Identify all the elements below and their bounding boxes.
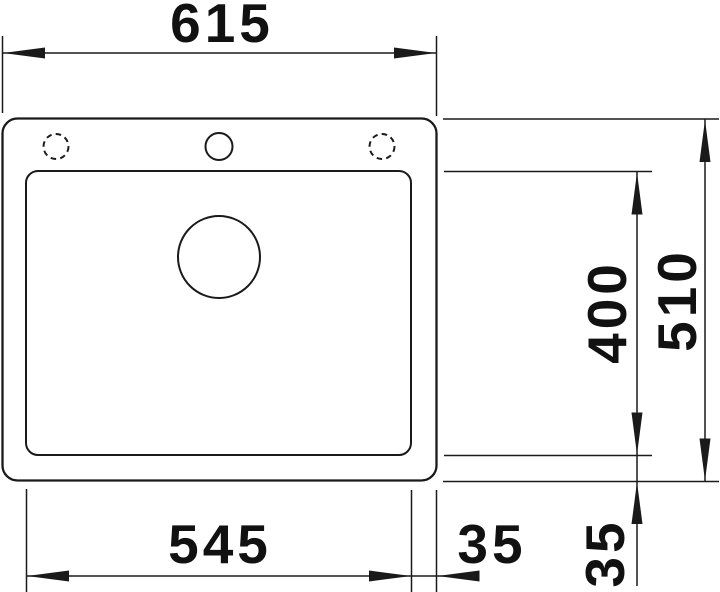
arrow-up-icon bbox=[700, 120, 711, 162]
dim-label-depth-overall: 510 bbox=[646, 248, 708, 352]
sink-bowl-outline bbox=[26, 171, 411, 455]
arrow-left-icon bbox=[3, 48, 45, 59]
dim-label-width-bowl: 545 bbox=[168, 513, 272, 575]
arrow-up-icon bbox=[632, 482, 643, 524]
drain-hole-circle bbox=[178, 216, 260, 298]
dim-width-bowl: 545 bbox=[27, 489, 413, 592]
technical-drawing-page: 615 545 35 400 bbox=[0, 0, 720, 592]
arrow-up-icon bbox=[632, 173, 643, 215]
sink-technical-drawing: 615 545 35 400 bbox=[0, 0, 720, 592]
arrow-down-icon bbox=[700, 439, 711, 481]
dim-label-depth-bowl: 400 bbox=[576, 260, 638, 364]
sink-outlines bbox=[3, 119, 437, 481]
dim-label-depth-offset: 35 bbox=[574, 518, 636, 587]
dim-depth-bowl: 400 bbox=[444, 172, 652, 456]
arrow-left-icon bbox=[27, 571, 69, 582]
tap-hole-right-dashed-circle bbox=[370, 134, 395, 159]
tap-hole-center-circle bbox=[206, 133, 233, 160]
dim-label-width-offset: 35 bbox=[457, 513, 526, 575]
arrow-right-icon bbox=[394, 48, 436, 59]
arrow-right-icon bbox=[369, 571, 411, 582]
dim-width-overall: 615 bbox=[3, 0, 437, 116]
sink-outer-outline bbox=[3, 119, 437, 481]
tap-hole-left-dashed-circle bbox=[44, 134, 69, 159]
arrow-down-icon bbox=[632, 413, 643, 455]
dim-label-width-overall: 615 bbox=[170, 0, 274, 54]
dim-depth-offset: 35 bbox=[574, 455, 643, 588]
dim-width-offset: 35 bbox=[412, 490, 527, 592]
